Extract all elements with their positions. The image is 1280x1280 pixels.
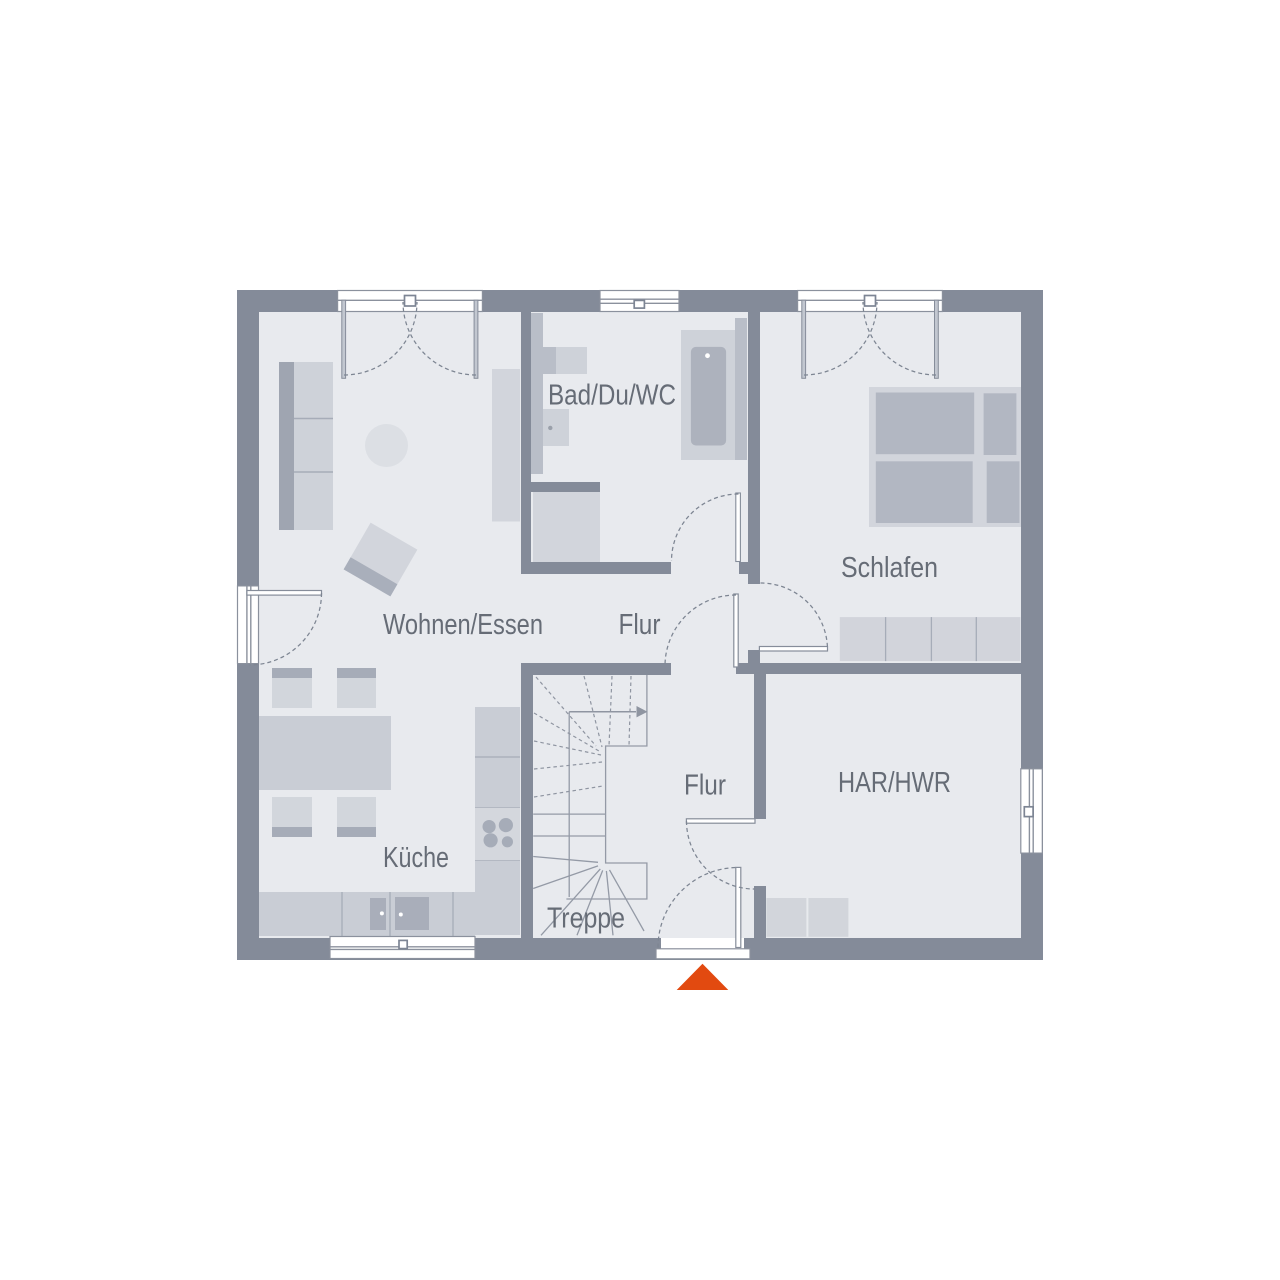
svg-text:HAR/HWR: HAR/HWR [838,767,951,799]
svg-text:Küche: Küche [383,842,449,874]
svg-text:Bad/Du/WC: Bad/Du/WC [548,380,676,412]
svg-text:Flur: Flur [619,609,661,641]
svg-text:Flur: Flur [684,770,726,802]
svg-text:Wohnen/Essen: Wohnen/Essen [383,609,543,641]
svg-text:Schlafen: Schlafen [841,552,938,584]
svg-text:Treppe: Treppe [547,903,625,935]
